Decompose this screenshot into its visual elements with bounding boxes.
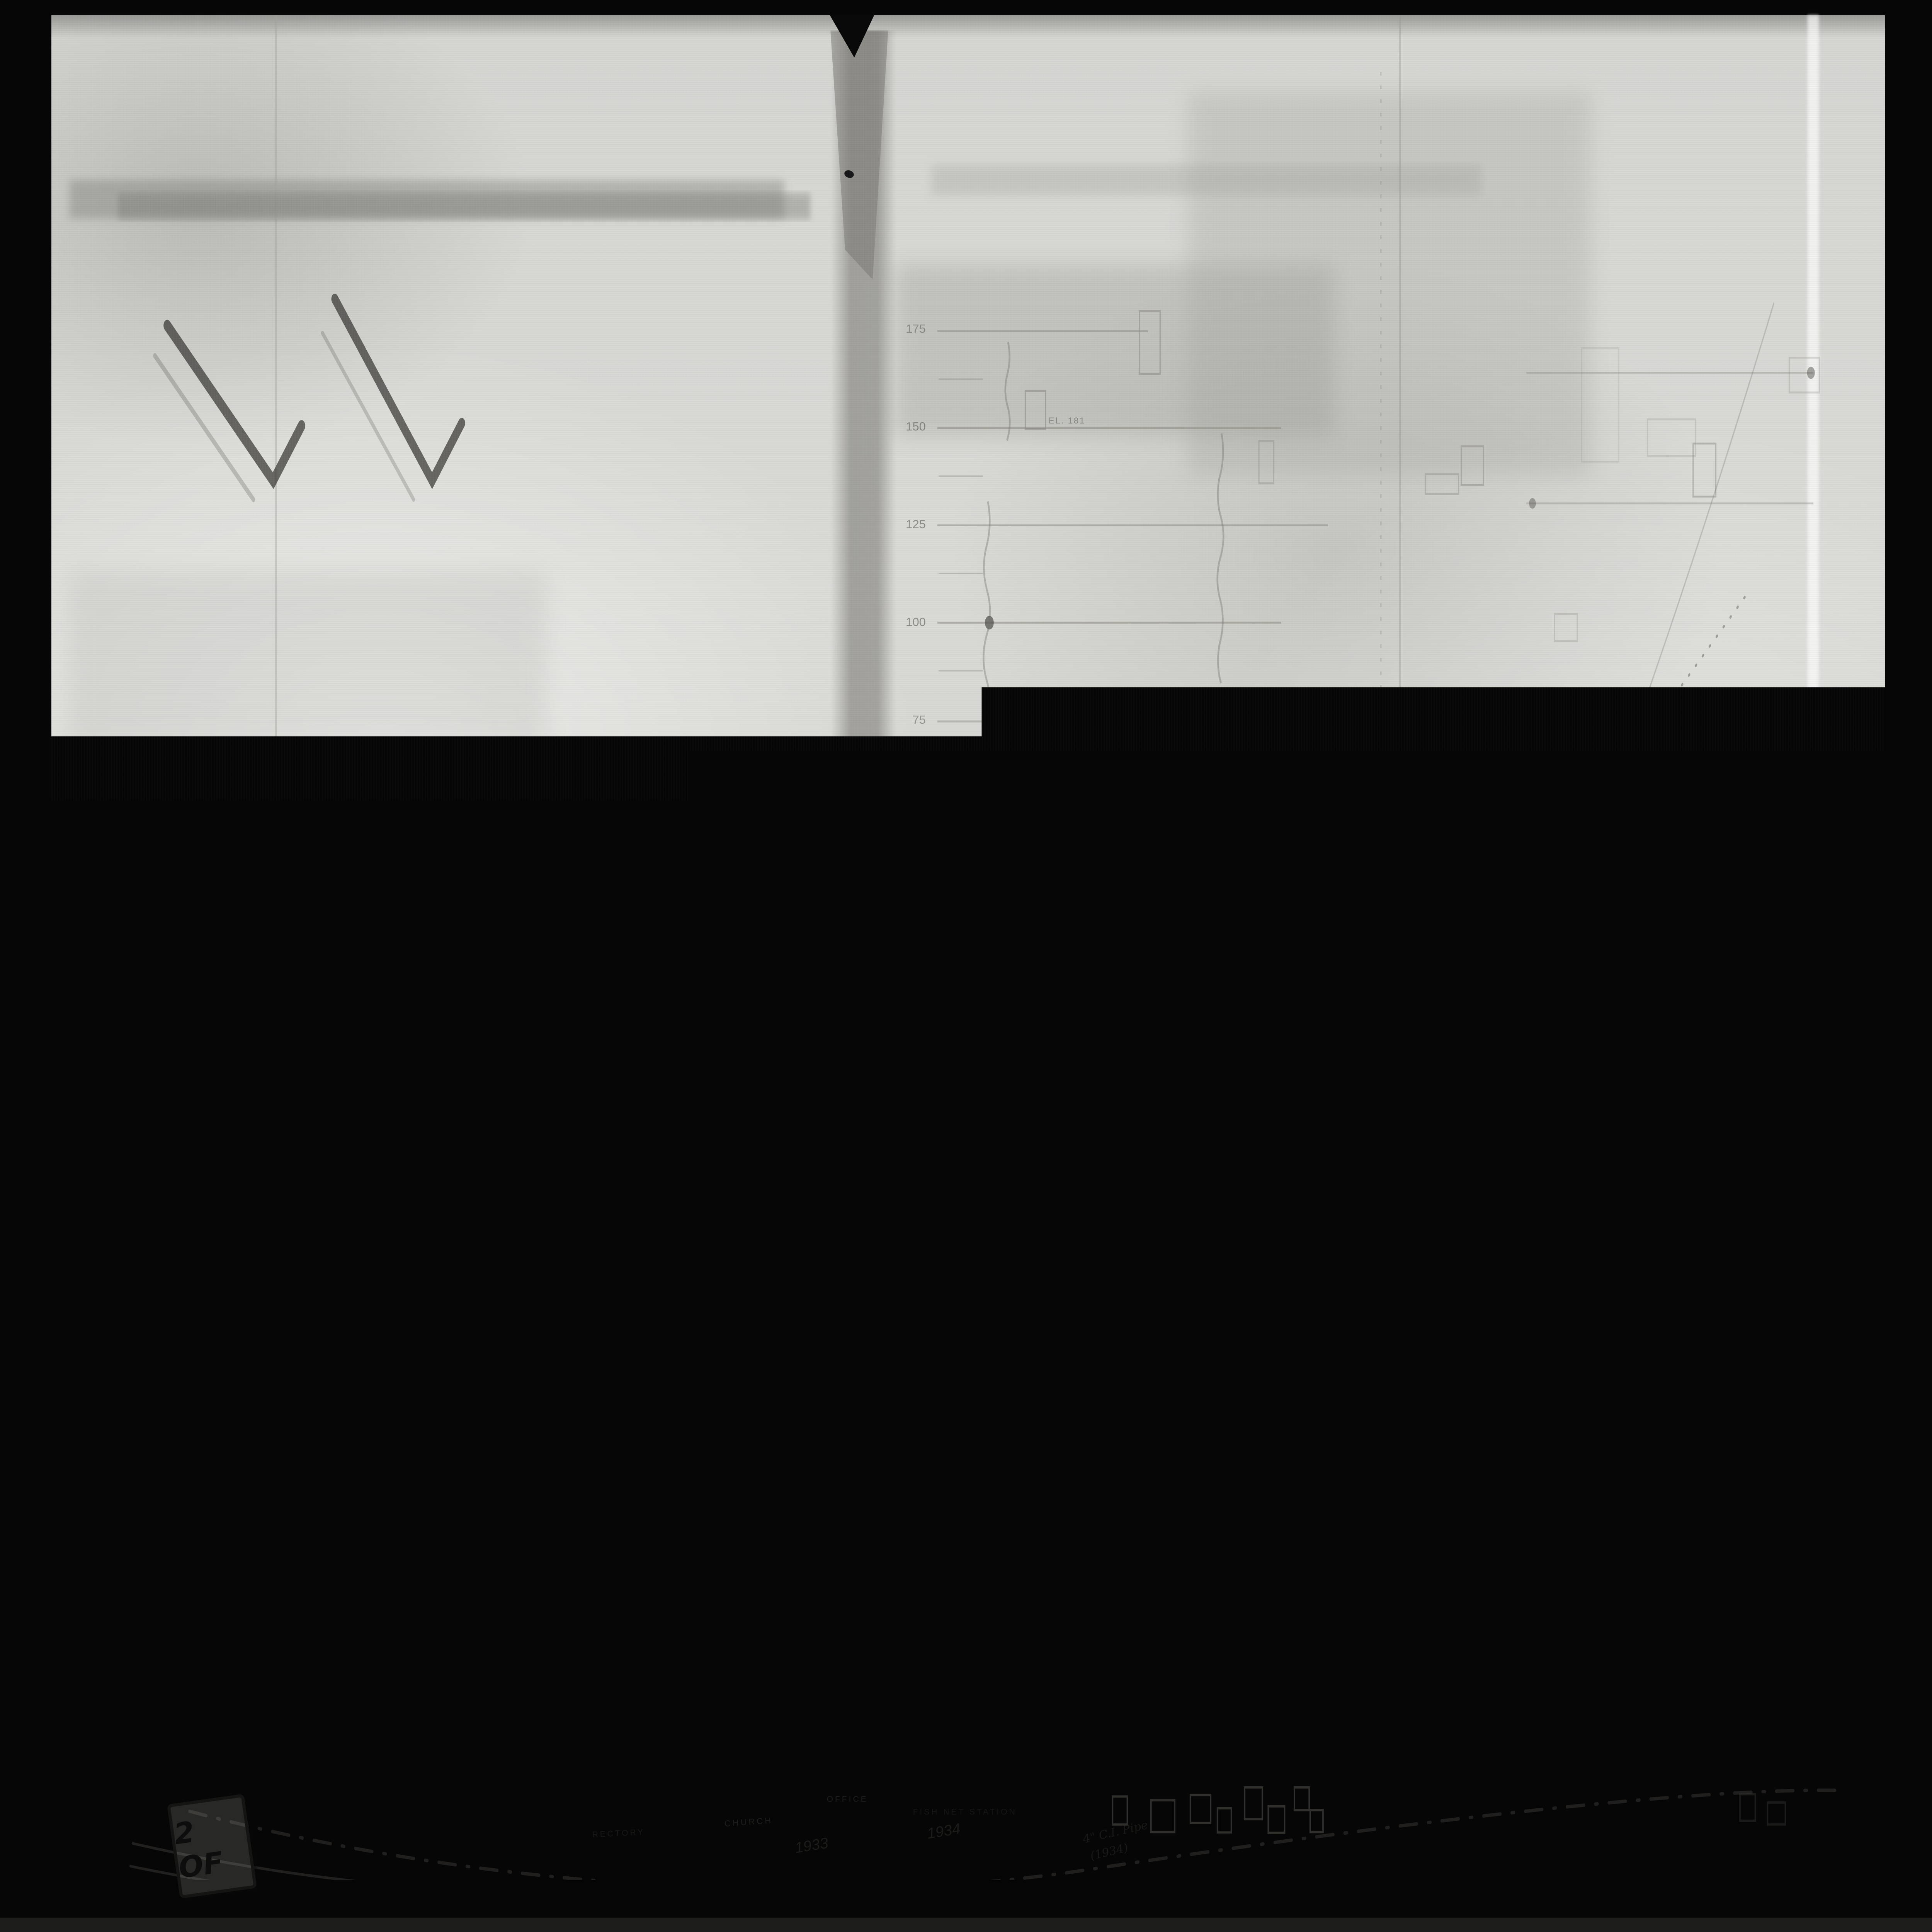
shore-survey-marks (847, 1823, 880, 1852)
page-number-tag: 2 OF (167, 1794, 257, 1899)
building-footprint (1026, 1768, 1044, 1789)
place-ghost-letter-3: YA (1120, 1307, 1170, 1362)
shoreline-building-row (1112, 1787, 1785, 1833)
building-footprint (1294, 1787, 1309, 1810)
map-title-word-3: PROPERTY (524, 865, 768, 930)
building-footprint (1767, 1803, 1785, 1825)
diamond-sketch (100, 303, 1774, 1698)
place-ghost-letter-2: I (1034, 1307, 1046, 1362)
building-footprint (1310, 1810, 1323, 1832)
place-name-ir: I.R. (1613, 1301, 1680, 1359)
building-footprint (1582, 348, 1619, 462)
building-footprint (1425, 474, 1458, 494)
scan-edge-strip (0, 1918, 1932, 1932)
place-ghost-letter-1: I (955, 1307, 968, 1362)
building-footprint (1740, 1794, 1755, 1821)
place-name-bay: BAY (1456, 1299, 1534, 1357)
indian-reserve-boundary-line (975, 594, 1747, 1673)
superintendent-label: INDIAN SUPERINTENDENT (806, 1700, 956, 1710)
building-footprint (932, 1718, 952, 1767)
building-footprint (1259, 441, 1274, 483)
office-footprint (871, 1787, 893, 1815)
elevation-tick-150: 150 (898, 420, 926, 434)
building-footprint (1461, 446, 1483, 485)
building-footprint (1112, 1796, 1127, 1824)
map-title-word-2: SYNOD (301, 864, 458, 929)
building-footprint (1693, 444, 1716, 497)
building-footprint (1217, 1808, 1231, 1833)
map-paper: LICAN'S SYNOD PROPERTY I I YA ALERT BAY … (51, 15, 1885, 1932)
check-marks (155, 299, 461, 500)
building-footprint (429, 1787, 461, 1810)
building-footprint (500, 1791, 535, 1828)
residence-label: RESIDENCE (803, 1713, 868, 1722)
building-footprint (1139, 311, 1160, 374)
scanned-map-photograph: LICAN'S SYNOD PROPERTY I I YA ALERT BAY … (0, 0, 1932, 1932)
vertical-scrawls (983, 342, 1223, 1107)
place-name-alert: ALERT (1254, 1301, 1384, 1359)
building-footprint (1647, 419, 1695, 456)
building-footprint (1789, 358, 1819, 393)
building-footprint (1151, 1800, 1174, 1832)
map-title-word-1: LICAN'S (55, 864, 228, 929)
elevation-tick-75: 75 (898, 713, 926, 727)
beach-highlight-line (100, 1865, 1840, 1881)
building-footprint (1245, 1787, 1262, 1819)
stores-label: STORES (872, 1713, 917, 1722)
building-footprint (1268, 1806, 1284, 1833)
spot-elevation-upper: EL. 181 (1049, 416, 1085, 426)
building-footprint (983, 1761, 1002, 1779)
stores-footprint (867, 1733, 892, 1762)
superintendent-residence-footprint (818, 1736, 852, 1764)
fish-station-label: FISH NET STATION (913, 1808, 1017, 1817)
map-linework (51, 15, 1885, 1932)
elevation-tick-100: 100 (898, 615, 926, 629)
elevation-tick-50: 50 (898, 811, 926, 825)
office-label: OFFICE (827, 1795, 868, 1804)
place-name-number: 1 (1767, 1299, 1790, 1357)
nursing-centre-label: NURSING CENTRE (957, 1701, 1061, 1711)
building-footprint (1554, 614, 1577, 641)
elevation-profile-lines (937, 331, 1833, 965)
elevation-tick-175: 175 (898, 322, 926, 336)
page-number-text: 2 OF (172, 1808, 252, 1885)
upper-building-footprints (1025, 311, 1819, 641)
elevation-tick-125: 125 (898, 517, 926, 531)
spot-elevation-lower: EL. 65 (1051, 742, 1082, 752)
building-footprint (1190, 1795, 1210, 1823)
building-footprint (1025, 391, 1045, 429)
